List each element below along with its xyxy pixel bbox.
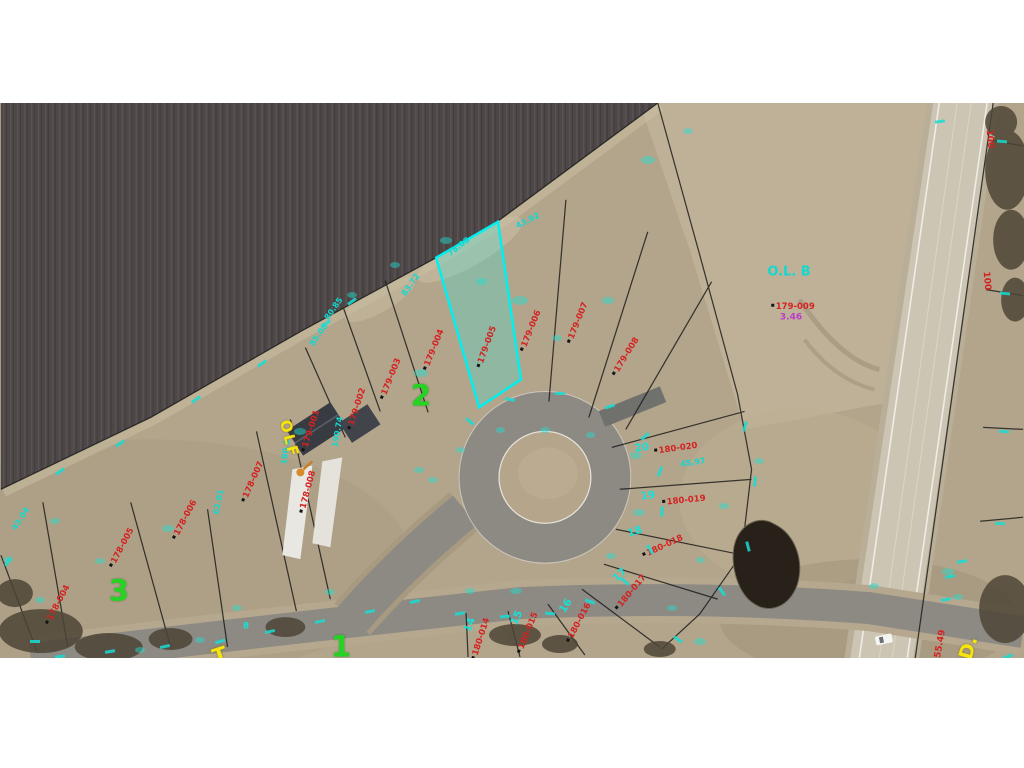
survey-tick-mark [640,432,650,441]
cyan-marker-patch [414,369,428,377]
lot-number-label: 15 [509,609,525,627]
cyan-marker-patch [630,452,642,459]
survey-tick-mark [660,506,664,516]
cyan-marker-patch [50,518,60,524]
survey-tick-mark [673,635,683,643]
survey-tick-mark [545,612,555,616]
cyan-marker-patch [606,553,616,559]
survey-tick-mark [30,640,40,643]
lot-number-label: 16 [558,597,575,615]
dimension-label: 62.01 [212,489,225,515]
survey-tick-mark [265,629,275,634]
survey-tick-mark [935,119,945,123]
cyan-marker-patch [294,428,306,435]
cyan-marker-patch [696,557,705,563]
cyan-marker-patch [3,557,13,563]
lot-number-label: 8 [243,623,249,632]
cyan-marker-patch [135,647,145,653]
survey-tick-mark [753,476,757,486]
lot-number-label: 14 [463,616,478,633]
cyan-marker-patch [633,509,645,516]
parcel-id-label: 179-002 [346,387,368,431]
parcel-id-label: 180-020 [654,442,698,456]
survey-tick-mark [945,574,955,579]
acreage-label: 3.46 [780,314,802,323]
dimension-label: 85.08 [308,322,329,347]
cyan-marker-patch [162,525,174,532]
survey-tick-mark [742,421,747,431]
cyan-marker-patch [510,588,522,594]
aerial-parcel-map[interactable]: 179-001179-002179-003179-004179-005179-0… [0,103,1024,658]
dimension-label: 190.74 [331,416,344,448]
cyan-marker-patch [414,467,424,473]
survey-tick-mark [657,466,663,476]
parcel-id-label: 100 [981,271,992,291]
parcel-id-label: 179-004 [422,328,446,372]
survey-tick-mark [999,430,1009,434]
street-name-label: D. [957,634,982,658]
cyan-marker-patch [476,278,487,285]
survey-tick-mark [105,649,115,654]
cyan-marker-patch [754,458,764,464]
survey-tick-mark [115,439,125,447]
survey-tick-mark [315,619,325,624]
survey-tick-mark [555,392,565,395]
parcel-id-label: 179-005 [476,325,499,369]
cyan-marker-patch [719,503,729,509]
block-number-label: 2 [411,382,431,411]
cyan-marker-patch [465,588,475,594]
cyan-marker-patch [428,477,437,483]
lot-number-label: 19 [640,490,656,502]
dimension-label: 43.04 [11,506,31,532]
dimension-label: 83.72 [400,272,421,297]
cyan-marker-patch [390,262,400,268]
survey-tick-mark [995,522,1005,526]
parcel-id-label: 178-007 [240,460,265,503]
survey-tick-mark [1000,292,1010,296]
cyan-marker-patch [667,605,677,611]
cyan-marker-patch [232,605,242,611]
survey-tick-mark [505,397,515,402]
street-name-label: T [210,644,230,658]
cyan-marker-patch [512,296,528,305]
cyan-marker-patch [586,432,595,438]
survey-tick-mark [941,597,951,602]
dimension-label: 80.85 [323,296,344,321]
survey-tick-mark [455,611,465,616]
cyan-marker-patch [552,335,562,341]
survey-tick-mark [55,654,65,658]
parcel-id-label: 100 [984,129,995,149]
cyan-marker-patch [35,597,45,603]
survey-tick-mark [745,541,750,551]
survey-tick-mark [257,359,267,367]
block-number-label: 3 [109,577,129,606]
cyan-marker-patch [347,292,357,298]
cyan-marker-patch [641,156,655,164]
cyan-marker-patch [456,447,465,453]
parcel-id-label: 179-008 [611,336,641,377]
survey-tick-mark [500,615,510,619]
parcel-id-label: 180-019 [662,494,706,507]
survey-tick-mark [997,140,1007,144]
survey-tick-mark [465,417,475,426]
cyan-marker-patch [540,427,550,433]
cyan-marker-patch [195,637,205,643]
cyan-marker-patch [953,594,963,600]
cyan-marker-patch [602,297,614,304]
parcel-id-label: 179-009 [771,303,815,312]
survey-tick-mark [347,297,357,305]
survey-tick-mark [718,587,726,597]
parcel-id-label: 178-008 [298,470,317,514]
map-label-layer: 179-001179-002179-003179-004179-005179-0… [0,103,1024,658]
cyan-marker-patch [694,638,706,645]
cyan-marker-patch [440,237,452,244]
block-number-label: 1 [331,633,351,659]
cyan-marker-patch [942,568,954,575]
survey-tick-mark [605,403,615,409]
parcel-id-label: 178-004 [44,584,72,626]
screenshot-page: 179-001179-002179-003179-004179-005179-0… [0,0,1024,768]
parcel-id-label: 179-003 [379,357,403,401]
parcel-id-label: 178-005 [108,527,136,569]
parcel-id-label: 55.49 [934,629,948,658]
survey-tick-mark [365,609,375,614]
parcel-id-label: 178-006 [171,499,199,541]
survey-tick-mark [410,599,420,604]
cyan-marker-patch [869,583,879,589]
parcel-id-label: 179-007 [566,301,590,345]
survey-tick-mark [1003,653,1013,658]
cyan-marker-patch [95,558,105,564]
survey-tick-mark [191,395,201,403]
survey-tick-mark [957,559,967,564]
cyan-marker-patch [683,128,693,134]
lot-number-label: 18 [626,525,643,540]
dimension-label: O.L. B [767,266,810,279]
survey-tick-mark [620,577,630,586]
survey-tick-mark [160,644,170,649]
cyan-marker-patch [325,589,335,595]
dimension-label: 43.92 [515,212,541,231]
survey-tick-mark [55,467,65,475]
dimension-label: 45.97 [680,457,706,468]
cyan-marker-patch [496,427,505,433]
parcel-id-label: 179-006 [519,309,543,353]
